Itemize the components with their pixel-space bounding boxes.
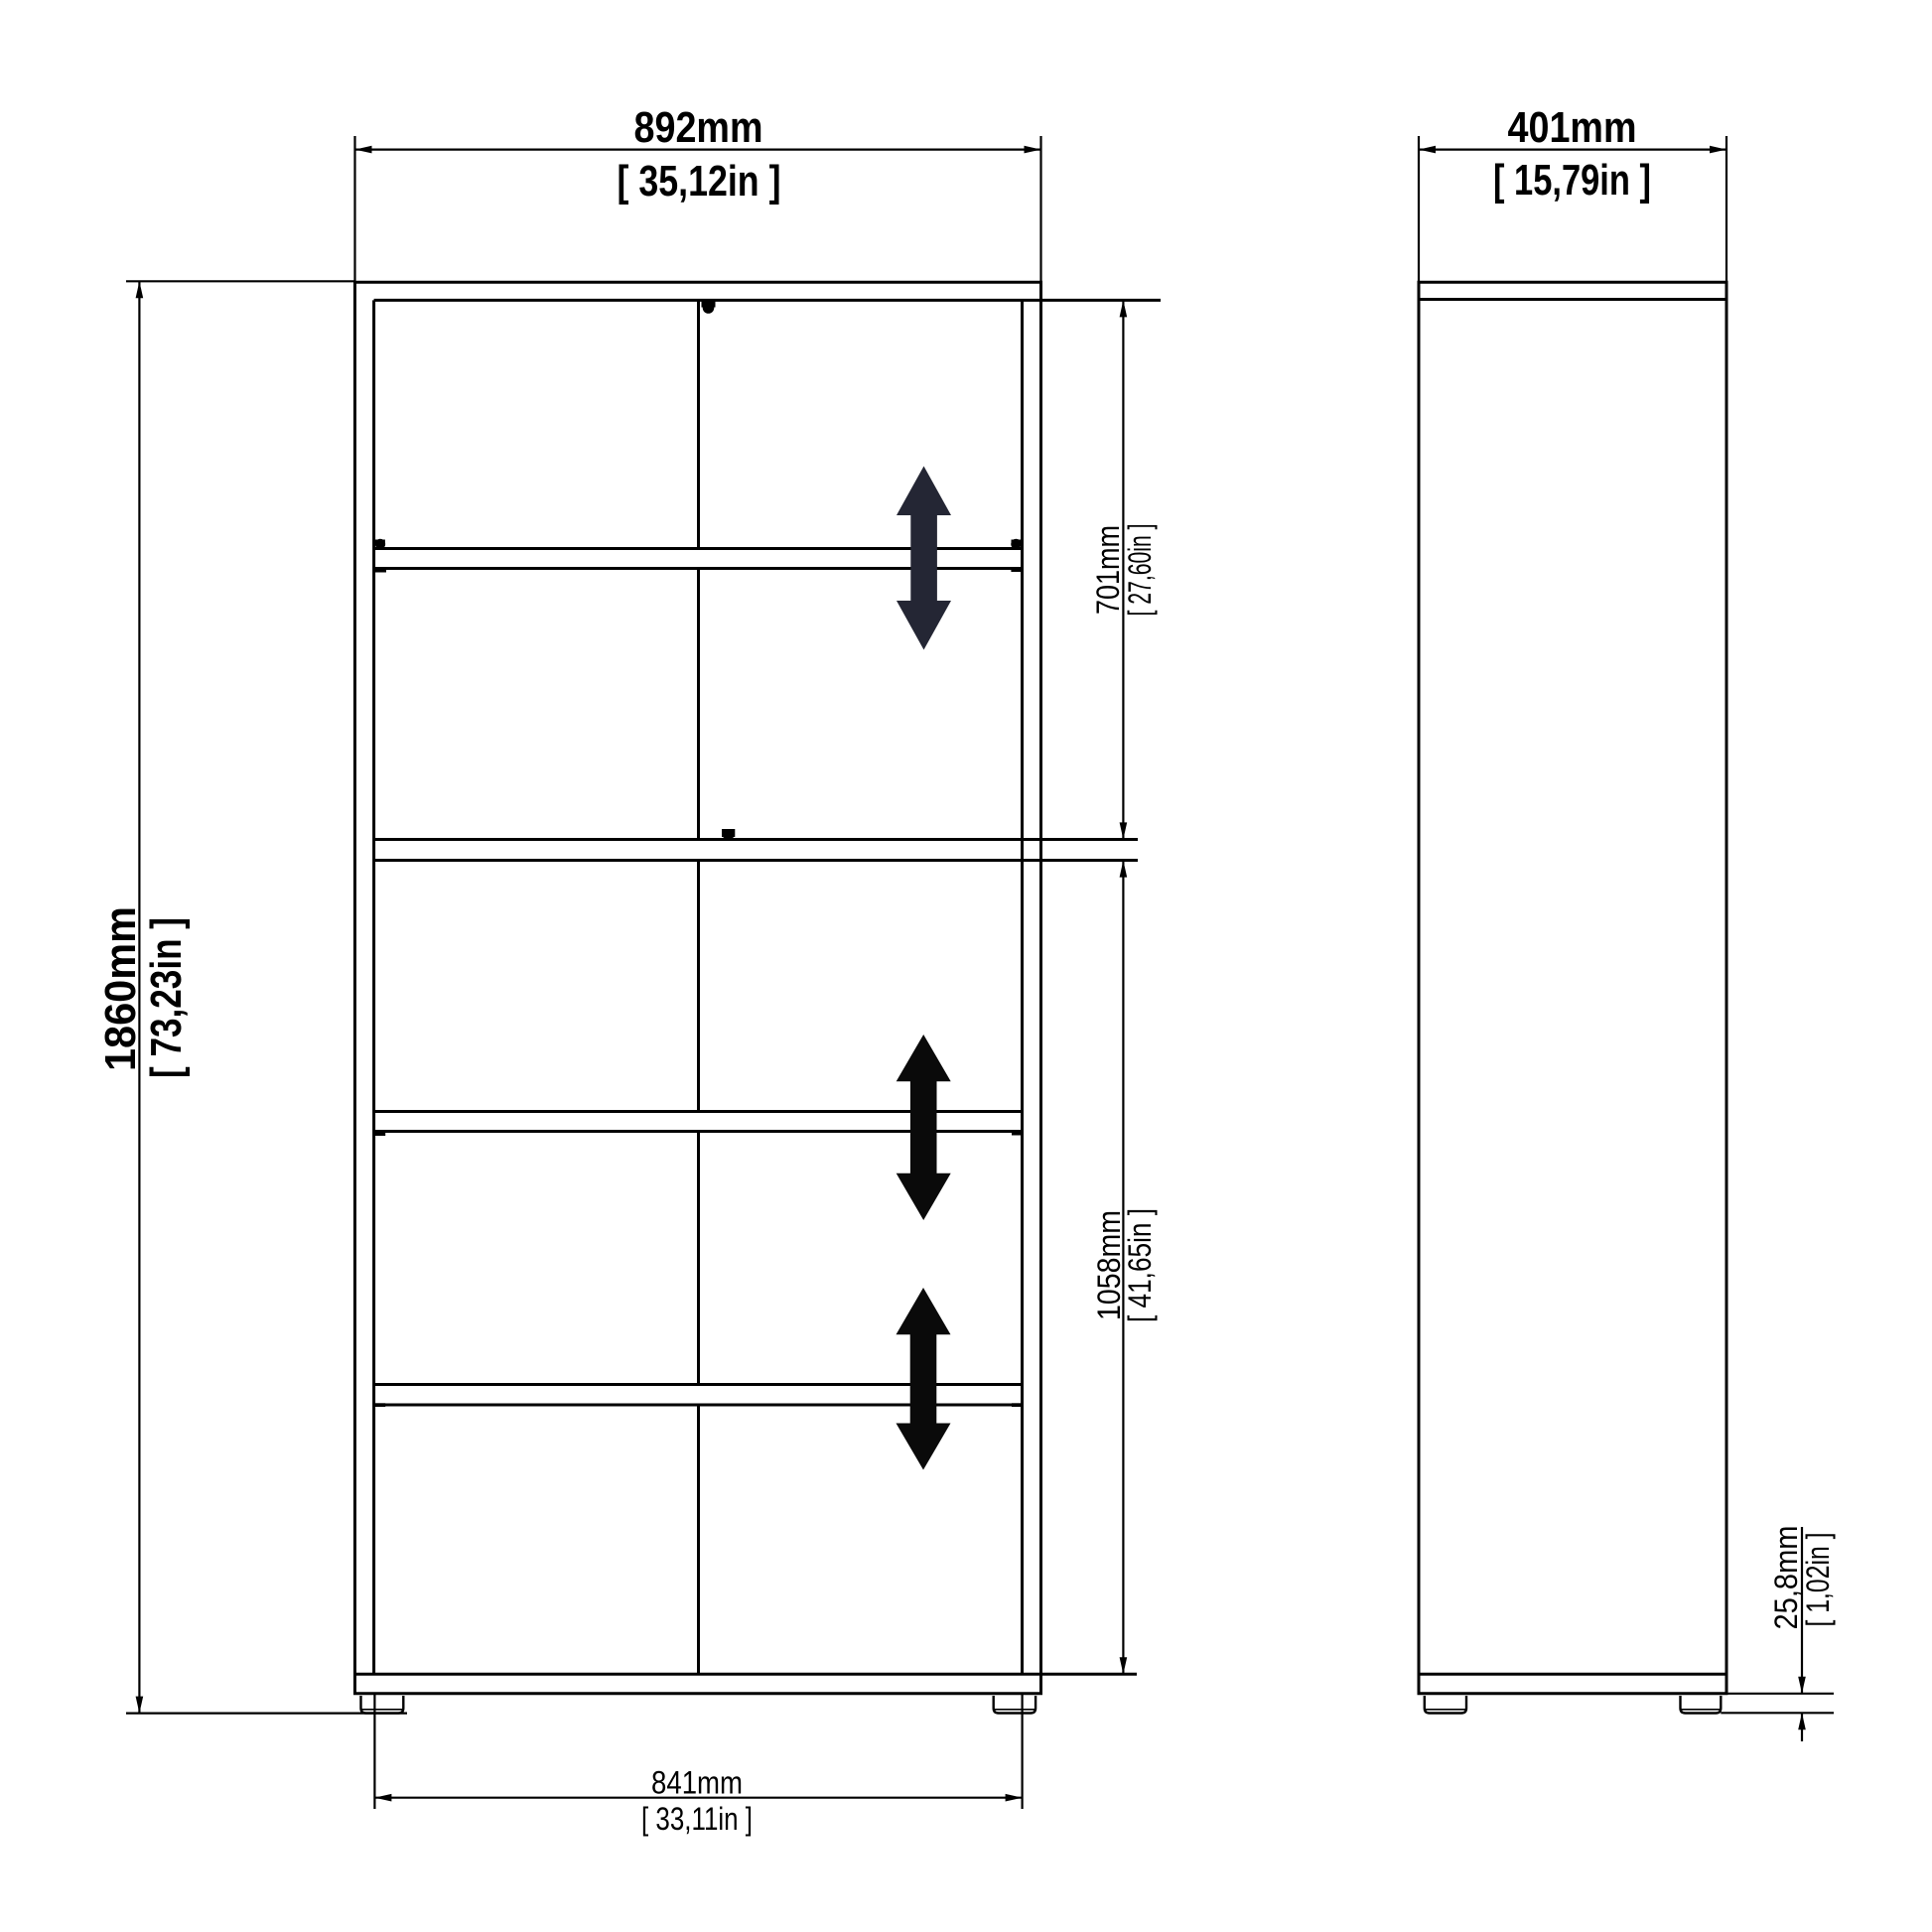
svg-text:[ 35,12in ]: [ 35,12in ]	[618, 157, 781, 206]
svg-text:[ 33,11in ]: [ 33,11in ]	[641, 1801, 753, 1837]
svg-text:841mm: 841mm	[651, 1765, 743, 1801]
svg-text:892mm: 892mm	[634, 103, 763, 152]
svg-text:701mm: 701mm	[1090, 525, 1126, 615]
svg-text:[ 41,65in ]: [ 41,65in ]	[1122, 1208, 1158, 1322]
svg-text:401mm: 401mm	[1508, 103, 1637, 152]
svg-text:25,8mm: 25,8mm	[1768, 1526, 1804, 1630]
svg-text:[ 27,60in ]: [ 27,60in ]	[1122, 524, 1158, 617]
svg-text:1860mm: 1860mm	[96, 906, 145, 1071]
svg-text:[ 73,23in ]: [ 73,23in ]	[142, 917, 191, 1078]
svg-text:[ 1,02in ]: [ 1,02in ]	[1800, 1533, 1836, 1627]
svg-text:[ 15,79in ]: [ 15,79in ]	[1493, 156, 1651, 205]
